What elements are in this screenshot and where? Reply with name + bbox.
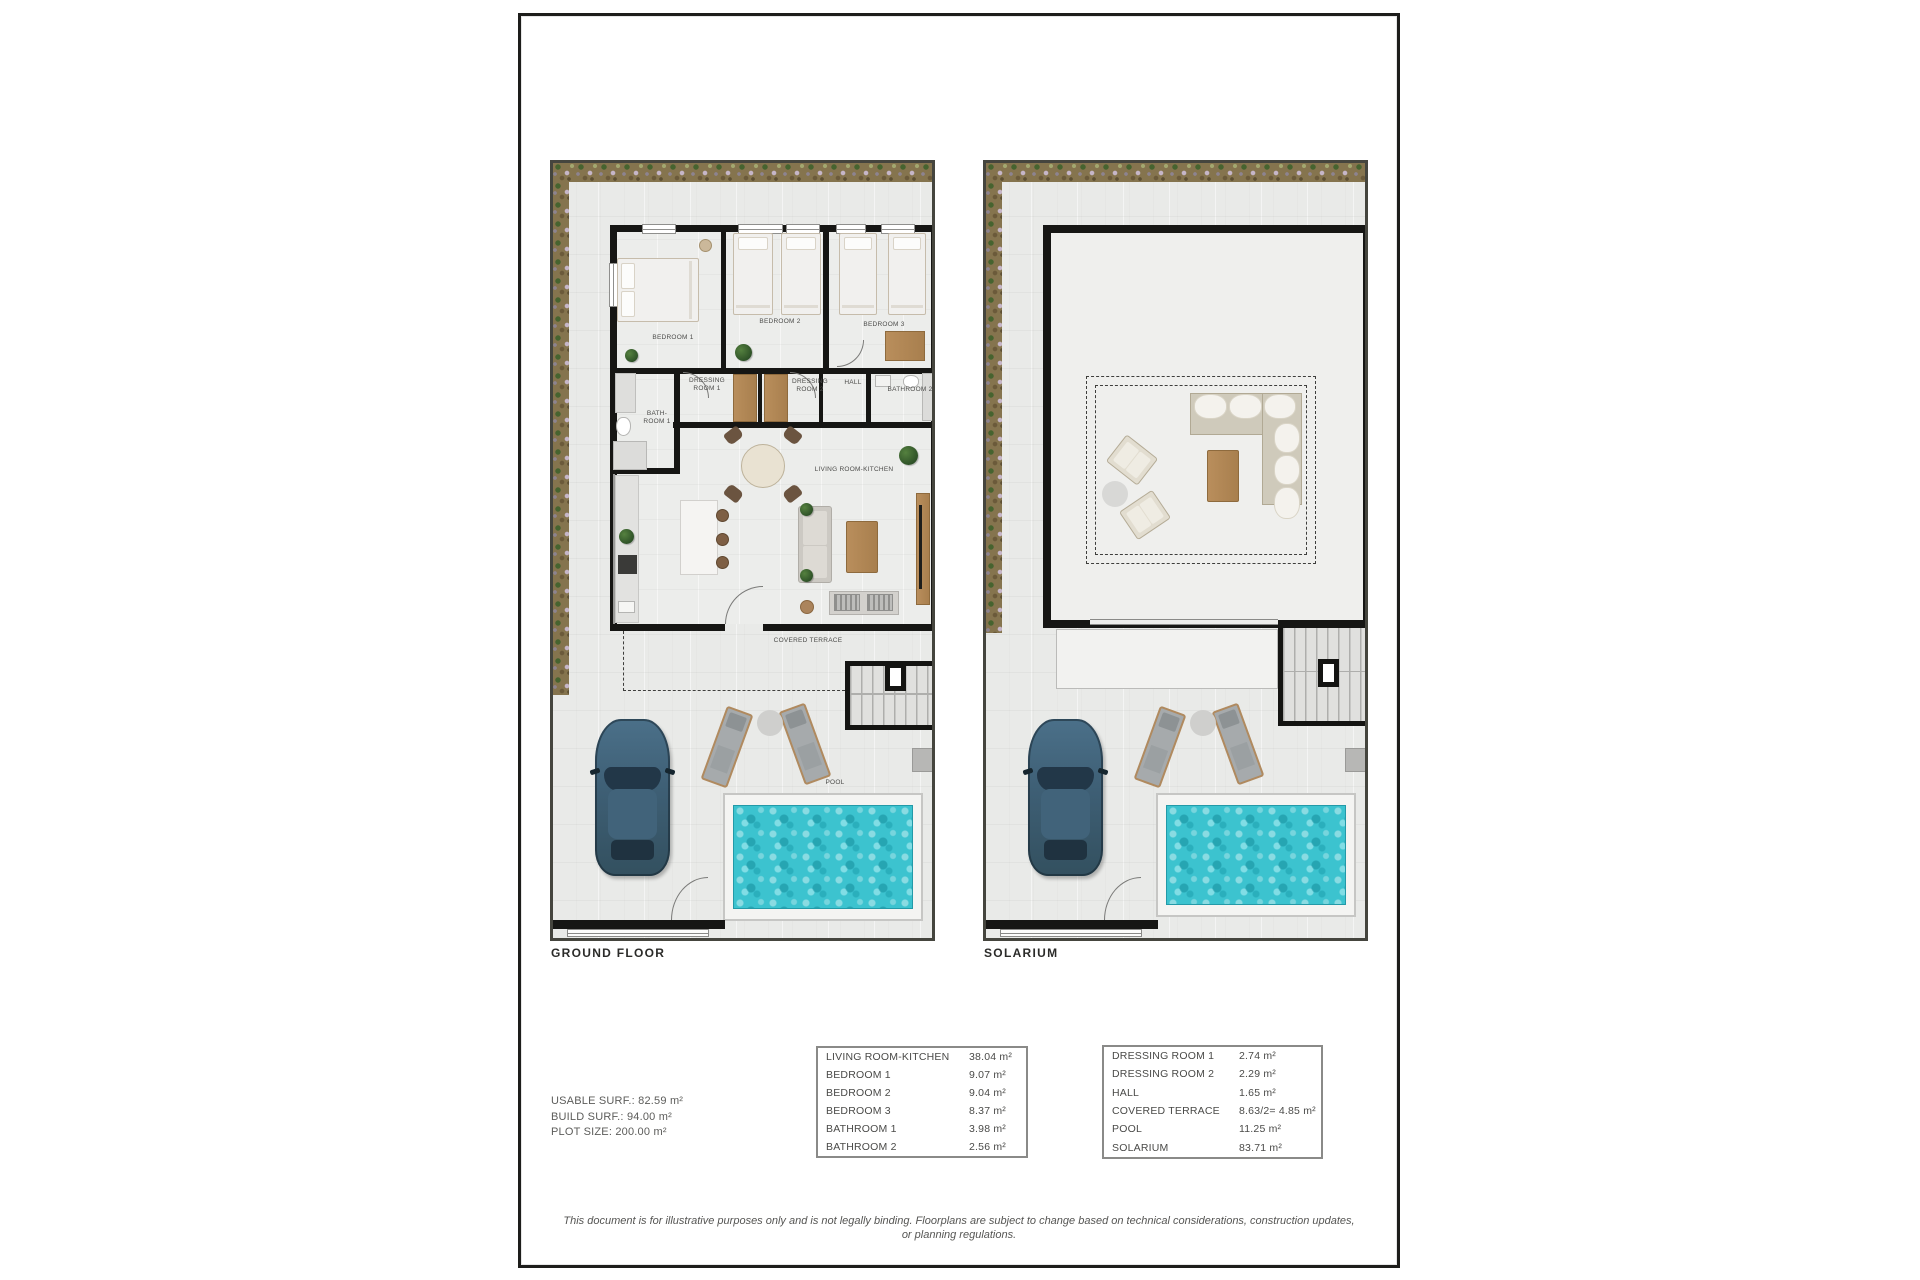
plant (735, 344, 752, 361)
room-label-bedroom2: BEDROOM 2 (750, 318, 810, 326)
bar-stool (716, 509, 729, 522)
sofa-cushion (1194, 394, 1227, 419)
room-label-dressing2: DRESSING ROOM 2 (784, 378, 836, 394)
single-bed (733, 233, 773, 315)
row-label: BATHROOM 2 (826, 1141, 897, 1153)
coffee-table (846, 521, 878, 573)
wall (986, 920, 1158, 929)
table-row: BATHROOM 22.56 m² (818, 1138, 1026, 1156)
row-label: HALL (1112, 1087, 1139, 1099)
single-bed (781, 233, 821, 315)
solarium-title: SOLARIUM (984, 946, 1058, 960)
table-row: SOLARIUM83.71 m² (1104, 1139, 1321, 1157)
wall (721, 225, 726, 373)
disclaimer-text: This document is for illustrative purpos… (561, 1214, 1357, 1242)
table-row: DRESSING ROOM 12.74 m² (1104, 1047, 1321, 1065)
room-label-bedroom3: BEDROOM 3 (854, 321, 914, 329)
plot-size: PLOT SIZE: 200.00 m² (551, 1125, 683, 1141)
row-value: 38.04 m² (969, 1051, 1012, 1063)
ground-floor-title: GROUND FLOOR (551, 946, 665, 960)
room-label-living: LIVING ROOM-KITCHEN (804, 466, 904, 474)
coffee-table (1207, 450, 1239, 502)
gate-door-arc (671, 877, 708, 920)
disclaimer: This document is for illustrative purpos… (561, 1214, 1357, 1242)
covered-terrace-outline (623, 690, 845, 691)
wall (823, 225, 829, 373)
bar-stool (716, 533, 729, 546)
row-value: 2.56 m² (969, 1141, 1006, 1153)
table-row: DRESSING ROOM 22.29 m² (1104, 1065, 1321, 1083)
table-row: BEDROOM 29.04 m² (818, 1084, 1026, 1102)
bench-cushion (867, 594, 893, 611)
stair-void (1318, 659, 1339, 687)
car-top-view (1028, 719, 1103, 876)
wardrobe (885, 331, 925, 361)
row-value: 9.07 m² (969, 1069, 1006, 1081)
table-row: BATHROOM 13.98 m² (818, 1120, 1026, 1138)
wall (610, 624, 725, 631)
sun-lounger (701, 706, 754, 789)
row-value: 2.74 m² (1239, 1050, 1276, 1062)
table-row: HALL1.65 m² (1104, 1084, 1321, 1102)
row-value: 11.25 m² (1239, 1123, 1281, 1135)
wall (866, 368, 871, 426)
build-surface: BUILD SURF.: 94.00 m² (551, 1110, 683, 1126)
room-label-bathroom2: BATHROOM 2 (883, 386, 935, 394)
garden-strip-left (986, 163, 1002, 633)
entrance-gate (567, 929, 709, 937)
shower (922, 373, 935, 421)
row-value: 83.71 m² (1239, 1142, 1282, 1154)
row-value: 2.29 m² (1239, 1068, 1276, 1080)
garden-strip-top (553, 163, 932, 182)
table-row: BEDROOM 38.37 m² (818, 1102, 1026, 1120)
sun-lounger (1212, 703, 1265, 786)
solarium-plan (983, 160, 1368, 941)
kitchen-sink (618, 601, 635, 613)
row-value: 1.65 m² (1239, 1087, 1276, 1099)
sun-lounger (779, 703, 832, 786)
sofa-cushion (1229, 394, 1262, 419)
ac-unit (1345, 748, 1368, 772)
vanity (615, 373, 636, 413)
wall (758, 368, 762, 426)
window (1090, 619, 1278, 625)
wall (673, 422, 935, 428)
pouf (800, 600, 814, 614)
area-table-1: LIVING ROOM-KITCHEN38.04 m² BEDROOM 19.0… (816, 1046, 1028, 1158)
room-label-pool: POOL (805, 779, 865, 787)
covered-terrace-outline (623, 631, 624, 691)
row-label: SOLARIUM (1112, 1142, 1168, 1154)
cooktop (618, 555, 637, 574)
row-value: 8.63/2= 4.85 m² (1239, 1105, 1316, 1117)
ground-floor-plan: BEDROOM 1 BEDROOM 2 BEDROOM 3 DRESSING R… (550, 160, 935, 941)
pool (733, 805, 913, 909)
garden-strip-top (986, 163, 1365, 182)
row-label: DRESSING ROOM 2 (1112, 1068, 1214, 1080)
table-row: BEDROOM 19.07 m² (818, 1066, 1026, 1084)
car-top-view (595, 719, 670, 876)
wall (819, 368, 823, 426)
sofa-cushion (1274, 423, 1300, 453)
kitchen-island (680, 500, 718, 575)
stair-void (885, 663, 906, 691)
tv (919, 505, 922, 589)
bench-cushion (834, 594, 860, 611)
outdoor-table (1102, 481, 1128, 507)
terrace-roof (1056, 629, 1278, 689)
room-label-covered-terrace: COVERED TERRACE (758, 637, 858, 645)
row-label: COVERED TERRACE (1112, 1105, 1220, 1117)
usable-surface: USABLE SURF.: 82.59 m² (551, 1094, 683, 1110)
single-bed (839, 233, 877, 315)
plant (899, 446, 918, 465)
row-label: DRESSING ROOM 1 (1112, 1050, 1214, 1062)
plant (800, 569, 813, 582)
row-label: POOL (1112, 1123, 1142, 1135)
surface-summary: USABLE SURF.: 82.59 m² BUILD SURF.: 94.0… (551, 1094, 683, 1141)
row-value: 9.04 m² (969, 1087, 1006, 1099)
document-frame: BEDROOM 1 BEDROOM 2 BEDROOM 3 DRESSING R… (518, 13, 1400, 1268)
sofa-cushion (1274, 487, 1300, 519)
row-label: LIVING ROOM-KITCHEN (826, 1051, 949, 1063)
wall (553, 920, 725, 929)
sofa-cushion (1264, 394, 1296, 419)
gate-door-arc (1104, 877, 1141, 920)
garden-strip-left (553, 163, 569, 695)
sofa-cushion (1274, 455, 1300, 485)
row-value: 8.37 m² (969, 1105, 1006, 1117)
sun-lounger (1134, 706, 1187, 789)
table-row: POOL11.25 m² (1104, 1120, 1321, 1138)
row-label: BEDROOM 2 (826, 1087, 891, 1099)
bar-stool (716, 556, 729, 569)
row-label: BATHROOM 1 (826, 1123, 897, 1135)
room-label-bedroom1: BEDROOM 1 (643, 334, 703, 342)
double-bed (617, 258, 699, 322)
room-label-hall: HALL (837, 379, 869, 387)
area-table-2: DRESSING ROOM 12.74 m² DRESSING ROOM 22.… (1102, 1045, 1323, 1159)
row-label: BEDROOM 1 (826, 1069, 891, 1081)
plant (800, 503, 813, 516)
outdoor-table (1190, 710, 1216, 736)
outdoor-table (757, 710, 783, 736)
room-label-dressing1: DRESSING ROOM 1 (681, 377, 733, 393)
table-row: COVERED TERRACE8.63/2= 4.85 m² (1104, 1102, 1321, 1120)
row-value: 3.98 m² (969, 1123, 1006, 1135)
room-label-bathroom1: BATH- ROOM 1 (637, 410, 677, 426)
window (642, 224, 676, 234)
plant (625, 349, 638, 362)
wall (763, 624, 935, 631)
table-row: LIVING ROOM-KITCHEN38.04 m² (818, 1048, 1026, 1066)
dining-table (741, 444, 785, 488)
toilet (616, 417, 631, 436)
plant (619, 529, 634, 544)
ac-unit (912, 748, 935, 772)
pool (1166, 805, 1346, 905)
stool (699, 239, 712, 252)
entrance-gate (1000, 929, 1142, 937)
single-bed (888, 233, 926, 315)
shower (613, 441, 647, 470)
row-label: BEDROOM 3 (826, 1105, 891, 1117)
wardrobe (733, 374, 757, 422)
